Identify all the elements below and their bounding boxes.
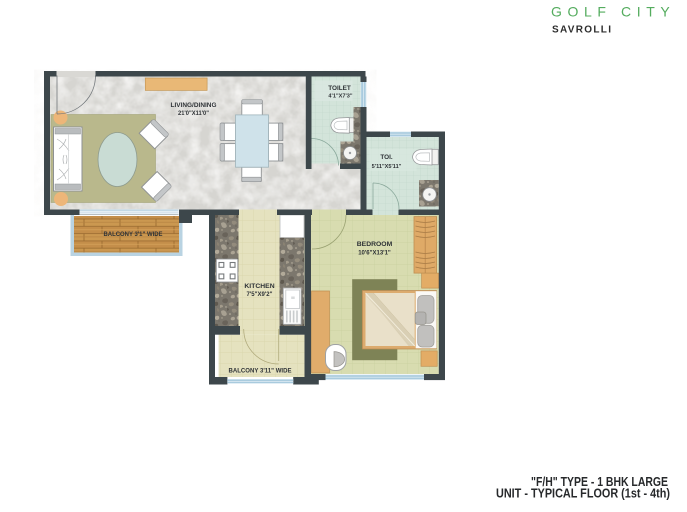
svg-text:5'11"X5'11": 5'11"X5'11" xyxy=(372,164,402,170)
svg-text:GOLF CITY: GOLF CITY xyxy=(551,4,675,20)
svg-text:BEDROOM: BEDROOM xyxy=(357,241,393,248)
svg-text:TOI.: TOI. xyxy=(380,154,393,161)
svg-text:7'5"X9'2": 7'5"X9'2" xyxy=(247,292,273,298)
svg-text:KITCHEN: KITCHEN xyxy=(244,283,274,290)
svg-text:4'1"X7'3": 4'1"X7'3" xyxy=(328,94,352,100)
svg-text:21'0"X11'0": 21'0"X11'0" xyxy=(178,111,209,117)
svg-text:SAVROLLI: SAVROLLI xyxy=(552,25,611,36)
svg-text:BALCONY 3'11" WIDE: BALCONY 3'11" WIDE xyxy=(229,368,292,375)
svg-text:10'6"X13'1": 10'6"X13'1" xyxy=(358,251,391,257)
svg-text:LIVING/DINING: LIVING/DINING xyxy=(171,102,217,109)
svg-text:BALCONY 3'1" WIDE: BALCONY 3'1" WIDE xyxy=(104,231,163,238)
svg-text:UNIT - TYPICAL FLOOR (1st - 4: UNIT - TYPICAL FLOOR (1st - 4th) xyxy=(496,486,670,501)
svg-text:TOILET: TOILET xyxy=(328,85,351,92)
